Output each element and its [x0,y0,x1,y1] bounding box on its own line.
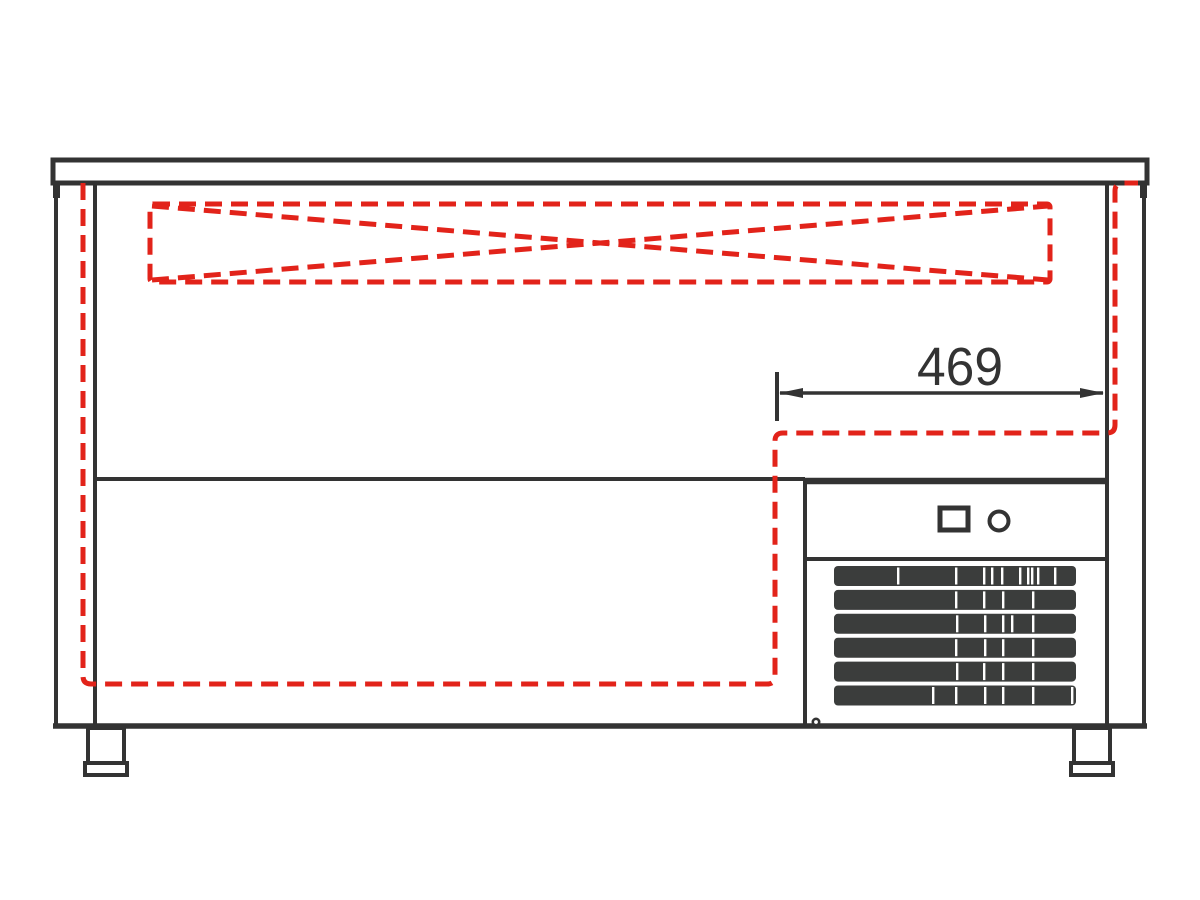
grille-louver-tick [955,639,957,656]
technical-drawing-canvas: 469 [0,0,1200,900]
left-foot [88,728,124,764]
dimension-label: 469 [917,337,1003,397]
grille-louver-tick [1002,663,1004,680]
grille-louver-tick [1032,639,1034,656]
grille-louver-tick [1032,687,1034,704]
grille-louver-tick [991,568,993,585]
grille-louver-tick [956,663,958,680]
grille-louver-tick [983,591,985,608]
grille-louver-tick [1071,687,1073,704]
grille-bar [834,614,1076,634]
grille-louver-tick [932,687,934,704]
grille-louver-tick [1019,568,1021,585]
grille-louver-tick [955,568,957,585]
grille-louver-tick [1032,591,1034,608]
grille-louver-tick [983,568,985,585]
grille-louver-tick [984,639,986,656]
power-switch[interactable] [940,508,968,530]
grille-louver-tick [983,663,985,680]
dimension-arrow-right [1080,388,1104,398]
grille-louver-tick [1002,639,1004,656]
left-foot-pad [85,763,127,775]
refrigerated-counter-front-view: 469 [0,0,1200,900]
dimension-arrow-left [779,388,803,398]
grille-louver-tick [955,687,957,704]
grille-louver-tick [1027,568,1029,585]
vent-grille [834,566,1076,706]
right-foot-pad [1071,763,1113,775]
grille-bar [834,662,1076,682]
grille-louver-tick [1002,687,1004,704]
grille-louver-tick [984,687,986,704]
countertop [53,160,1147,183]
grille-louver-tick [1001,568,1003,585]
grille-louver-tick [1032,615,1034,632]
grille-louver-tick [1002,591,1004,608]
grille-louver-tick [955,591,957,608]
grille-louver-tick [1031,568,1033,585]
grille-louver-tick [1054,568,1056,585]
grille-louver-tick [1032,663,1034,680]
grille-louver-tick [1002,615,1004,632]
right-foot [1074,728,1110,764]
grille-louver-tick [1011,615,1013,632]
grille-louver-tick [956,615,958,632]
screw-dot [813,719,819,725]
indicator-lamp [990,512,1009,531]
grille-louver-tick [1037,568,1039,585]
grille-louver-tick [984,615,986,632]
grille-louver-tick [897,568,899,585]
